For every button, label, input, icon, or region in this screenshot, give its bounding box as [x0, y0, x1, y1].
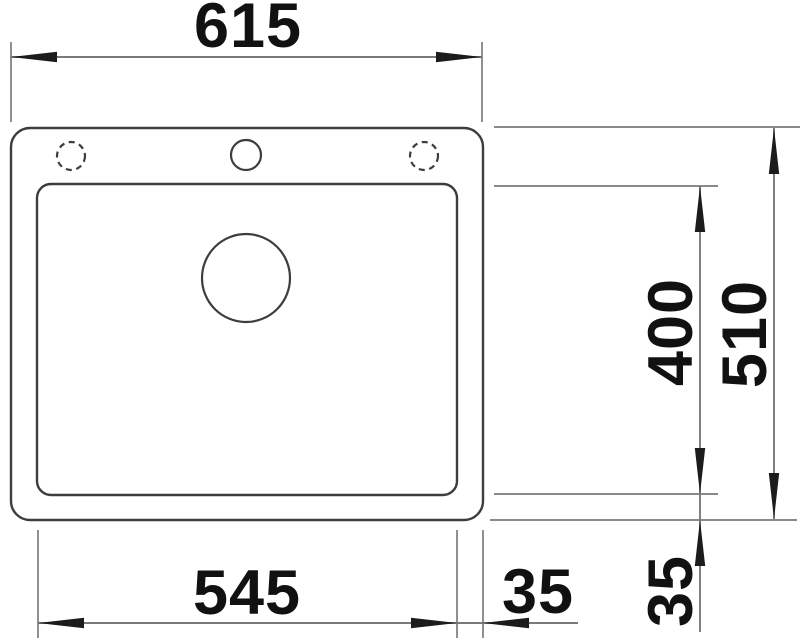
dim-overall-depth: 510	[710, 128, 780, 519]
sink-outer-rim	[11, 128, 483, 520]
label-overall-width: 615	[194, 0, 302, 61]
dim-overall-width: 615	[11, 0, 482, 122]
label-edge-offset-vertical: 35	[636, 555, 706, 627]
arrowhead-right	[411, 618, 457, 628]
drawing-canvas: 615 400 35 510	[0, 0, 800, 640]
tap-hole-optional-right	[410, 142, 438, 170]
sink-dimension-drawing: 615 400 35 510	[0, 0, 800, 640]
arrowhead-left	[11, 52, 57, 62]
arrowhead-right	[436, 52, 482, 62]
label-bowl-width: 545	[193, 558, 301, 628]
tap-hole-optional-left	[57, 142, 85, 170]
arrowhead-down	[769, 473, 779, 519]
label-edge-offset-horizontal: 35	[502, 557, 574, 627]
label-overall-depth: 510	[710, 280, 780, 388]
dim-bowl-width: 545	[38, 558, 457, 628]
dim-edge-offset-vertical: 35	[636, 520, 706, 627]
label-bowl-depth: 400	[636, 278, 706, 386]
drain-circle	[202, 234, 290, 322]
arrowhead-left	[38, 618, 84, 628]
sink-bowl-outline	[37, 184, 457, 495]
arrowhead-up	[695, 186, 705, 232]
arrowhead-up	[769, 128, 779, 174]
tap-hole-center	[231, 140, 261, 170]
dim-edge-offset-horizontal: 35	[457, 557, 578, 628]
arrowhead-down	[695, 448, 705, 494]
